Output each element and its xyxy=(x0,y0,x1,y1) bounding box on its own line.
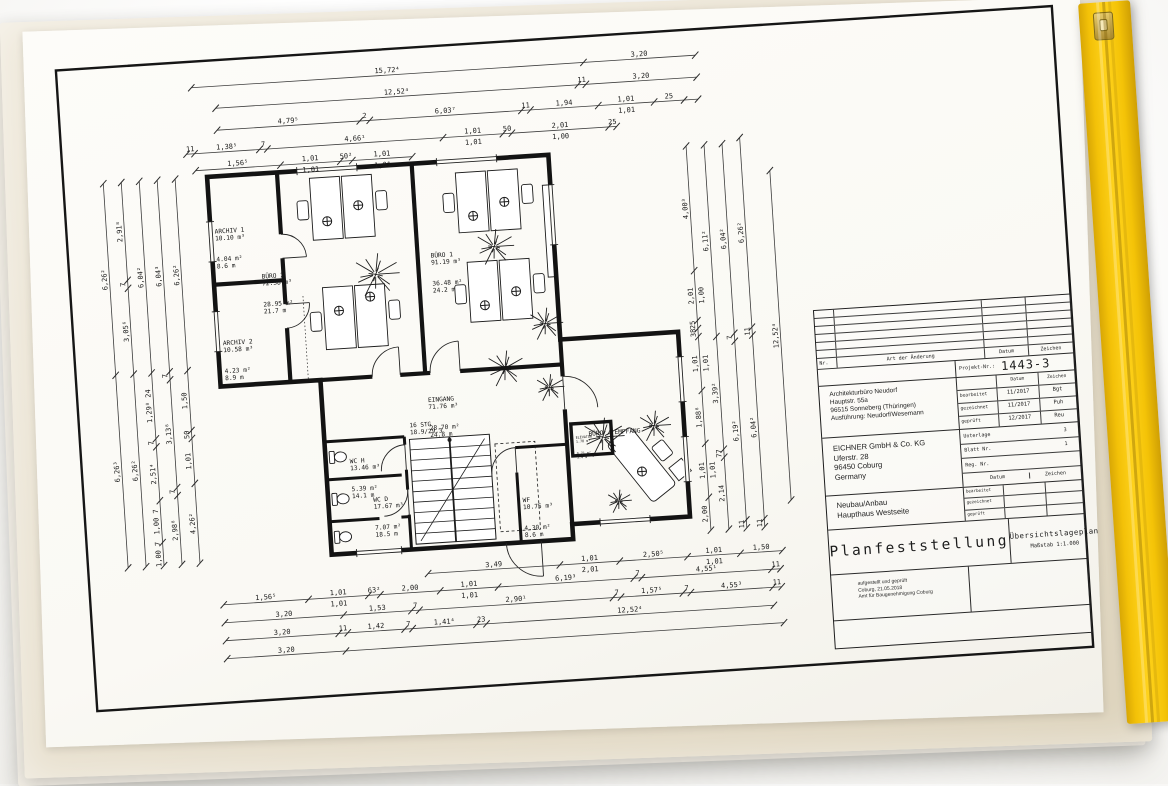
svg-text:1,01: 1,01 xyxy=(184,453,193,470)
room-label-wf: WF10.75 m³ 4.30 m²8.6 m xyxy=(521,481,555,553)
svg-text:12,52⁴: 12,52⁴ xyxy=(771,323,781,349)
svg-text:1,56⁵: 1,56⁵ xyxy=(227,159,249,168)
svg-text:2,50⁵: 2,50⁵ xyxy=(643,550,665,559)
svg-text:3,20: 3,20 xyxy=(630,50,647,59)
svg-text:1,01: 1,01 xyxy=(465,138,482,147)
svg-text:1,41⁴: 1,41⁴ xyxy=(434,617,456,626)
svg-text:2,01: 2,01 xyxy=(582,565,599,574)
svg-text:4,55³: 4,55³ xyxy=(721,581,743,590)
photo-stage: 15,72⁴3,2012,52⁴113,204,79⁵26,03⁷111,941… xyxy=(0,0,1168,784)
svg-text:2,00: 2,00 xyxy=(401,584,418,593)
svg-text:2,51⁴: 2,51⁴ xyxy=(149,463,158,485)
plan-sheet: 15,72⁴3,2012,52⁴113,204,79⁵26,03⁷111,941… xyxy=(22,0,1103,747)
project-number-label: Projekt-Nr.: xyxy=(959,363,995,371)
svg-text:1,01: 1,01 xyxy=(302,165,319,174)
svg-text:3,20: 3,20 xyxy=(632,72,649,81)
svg-text:23: 23 xyxy=(477,615,486,624)
room-label-archiv1: ARCHIV 110.10 m³ 4.04 m²8.6 m xyxy=(214,213,248,285)
approval-stamp: aufgestellt und geprüftCoburg, 21.05.201… xyxy=(831,567,972,621)
svg-text:38: 38 xyxy=(689,328,698,337)
client-address: EICHNER GmbH & Co. KGUferstr. 28 96450 C… xyxy=(822,430,963,496)
svg-text:1,53: 1,53 xyxy=(369,604,386,613)
svg-text:3,05⁶: 3,05⁶ xyxy=(122,321,131,343)
svg-text:4,00³: 4,00³ xyxy=(681,198,690,220)
svg-text:1,01: 1,01 xyxy=(301,154,318,163)
svg-text:3,13⁸: 3,13⁸ xyxy=(164,423,173,445)
dimension-chains: 15,72⁴3,2012,52⁴113,204,79⁵26,03⁷111,941… xyxy=(88,42,802,669)
svg-text:1,01: 1,01 xyxy=(618,106,635,115)
svg-text:6,26³: 6,26³ xyxy=(113,461,122,483)
drawing-area: 15,72⁴3,2012,52⁴113,204,79⁵26,03⁷111,941… xyxy=(50,2,1100,716)
svg-text:6,26²: 6,26² xyxy=(172,264,181,286)
svg-text:7: 7 xyxy=(684,584,689,592)
svg-text:1,01: 1,01 xyxy=(698,462,707,479)
svg-text:6,19²: 6,19² xyxy=(731,420,740,442)
svg-text:2,90¹: 2,90¹ xyxy=(505,595,527,604)
svg-text:6,26²: 6,26² xyxy=(737,222,746,244)
svg-text:7: 7 xyxy=(406,620,411,628)
svg-text:1,38⁵: 1,38⁵ xyxy=(216,142,238,151)
svg-text:1,01: 1,01 xyxy=(581,554,598,563)
plan-type: Übersichtslageplan xyxy=(1009,526,1098,541)
svg-text:4,79⁵: 4,79⁵ xyxy=(277,116,299,125)
svg-text:50²: 50² xyxy=(339,152,352,161)
svg-text:1,01: 1,01 xyxy=(374,161,391,170)
stairs-label: 16 STG18.9/29.3 xyxy=(408,406,443,450)
svg-text:7: 7 xyxy=(635,569,640,577)
svg-text:11: 11 xyxy=(577,76,586,85)
svg-text:1,01: 1,01 xyxy=(708,461,717,478)
svg-text:11: 11 xyxy=(772,578,781,587)
svg-text:2,01: 2,01 xyxy=(551,121,568,130)
svg-text:6,26²: 6,26² xyxy=(131,460,140,482)
room-label-empfang: BÜRO / EMPFANG xyxy=(587,414,641,452)
svg-text:12,52⁴: 12,52⁴ xyxy=(617,605,643,615)
svg-text:2,98⁸: 2,98⁸ xyxy=(171,519,180,541)
svg-text:2: 2 xyxy=(362,112,367,120)
svg-text:6,11²: 6,11² xyxy=(701,230,710,252)
svg-text:1,01: 1,01 xyxy=(330,588,347,597)
svg-text:1,01: 1,01 xyxy=(373,149,390,158)
svg-text:1,57⁵: 1,57⁵ xyxy=(641,586,663,595)
svg-text:1,01: 1,01 xyxy=(702,354,711,371)
svg-text:3,20: 3,20 xyxy=(278,646,295,655)
svg-text:4,66¹: 4,66¹ xyxy=(344,134,366,143)
svg-text:11: 11 xyxy=(738,520,747,529)
svg-text:6,04²: 6,04² xyxy=(749,416,758,438)
svg-text:1,00: 1,00 xyxy=(552,132,569,141)
svg-text:2,01: 2,01 xyxy=(687,287,696,304)
svg-text:7: 7 xyxy=(169,489,177,494)
room-label-archiv2: ARCHIV 210.58 m³ 4.23 m²8.9 m xyxy=(222,324,256,396)
svg-text:6,19³: 6,19³ xyxy=(555,573,577,582)
svg-text:1,50: 1,50 xyxy=(180,392,189,409)
svg-text:2,91⁸: 2,91⁸ xyxy=(115,221,124,243)
svg-text:15,72⁴: 15,72⁴ xyxy=(374,66,400,76)
svg-text:6,04²: 6,04² xyxy=(136,267,145,289)
svg-text:25: 25 xyxy=(689,320,698,329)
svg-text:7: 7 xyxy=(161,374,169,379)
svg-text:63²: 63² xyxy=(368,586,381,595)
svg-text:50: 50 xyxy=(503,125,512,134)
svg-text:1,50: 1,50 xyxy=(752,543,769,552)
svg-text:4,26²: 4,26² xyxy=(188,513,197,535)
document-info: Unterlage3 Blatt Nr.1 Reg. Nr. DatumZeic… xyxy=(960,422,1081,486)
svg-text:11: 11 xyxy=(743,327,752,336)
svg-text:1,01: 1,01 xyxy=(461,591,478,600)
svg-text:11: 11 xyxy=(521,101,530,110)
svg-text:11: 11 xyxy=(771,560,780,569)
svg-text:6,04³: 6,04³ xyxy=(154,265,163,287)
svg-text:1,01: 1,01 xyxy=(617,95,634,104)
svg-text:50: 50 xyxy=(183,430,192,439)
architect-address: Architekturbüro NeudorfHauptstr. 55a 965… xyxy=(819,378,960,438)
svg-text:7: 7 xyxy=(614,589,619,597)
svg-text:6,04²: 6,04² xyxy=(719,228,728,250)
svg-text:3,20: 3,20 xyxy=(275,610,292,619)
svg-text:7: 7 xyxy=(726,335,734,340)
svg-text:2,00: 2,00 xyxy=(701,505,710,522)
svg-text:1,00 7: 1,00 7 xyxy=(152,509,162,535)
svg-text:11: 11 xyxy=(756,519,765,528)
elevator-label: ELEVATOR1.78 m³ 0.71 m²3.4 m xyxy=(575,427,594,468)
svg-text:7: 7 xyxy=(261,141,266,149)
svg-text:1,94: 1,94 xyxy=(555,99,572,108)
svg-text:1,42: 1,42 xyxy=(367,622,384,631)
svg-text:11: 11 xyxy=(339,624,348,633)
svg-text:4,55¹: 4,55¹ xyxy=(696,564,718,573)
svg-text:6,26²: 6,26² xyxy=(100,269,109,291)
svg-text:7: 7 xyxy=(413,602,418,610)
svg-text:6,03⁷: 6,03⁷ xyxy=(435,106,457,115)
main-title: Planfeststellung xyxy=(829,533,1009,561)
svg-text:1,88⁸: 1,88⁸ xyxy=(694,406,703,428)
svg-text:2,14: 2,14 xyxy=(717,485,726,502)
svg-text:1,01: 1,01 xyxy=(460,580,477,589)
svg-text:1,00 7: 1,00 7 xyxy=(154,541,164,567)
svg-text:3,20: 3,20 xyxy=(273,628,290,637)
svg-text:1,56⁵: 1,56⁵ xyxy=(255,593,277,602)
svg-text:1,00: 1,00 xyxy=(697,287,706,304)
title-block: Nr. Art der Änderung Datum Zeichen Proje… xyxy=(813,293,1092,649)
svg-text:25: 25 xyxy=(608,118,617,127)
svg-text:77: 77 xyxy=(715,449,724,458)
svg-text:7: 7 xyxy=(147,441,155,446)
svg-text:3,49: 3,49 xyxy=(485,560,502,569)
svg-text:1,01: 1,01 xyxy=(330,599,347,608)
zipper-pull xyxy=(1093,11,1115,40)
svg-text:7: 7 xyxy=(119,282,127,287)
room-label-buero1: BÜRO 191.19 m³ 36.48 m²24.2 m xyxy=(430,237,464,309)
svg-text:12,52⁴: 12,52⁴ xyxy=(384,87,410,97)
project-number-value: 1443-3 xyxy=(1001,356,1051,373)
scale: Maßstab 1:1.000 xyxy=(1010,539,1099,551)
room-label-wcd: WC D17.67 m³ 7.07 m²18.5 m xyxy=(372,481,406,553)
svg-text:11: 11 xyxy=(186,145,195,154)
svg-text:1,01: 1,01 xyxy=(705,546,722,555)
svg-text:3,39²: 3,39² xyxy=(711,382,720,404)
svg-text:1,01: 1,01 xyxy=(464,127,481,136)
room-label-buero2: BÜRO 272.38 m³ 28.95 m²21.7 m xyxy=(261,258,295,330)
svg-text:25: 25 xyxy=(664,92,673,101)
signature-table: DatumZeichen bearbeitet11/2017Bgt gezeic… xyxy=(957,370,1078,429)
svg-text:1,01: 1,01 xyxy=(691,355,700,372)
